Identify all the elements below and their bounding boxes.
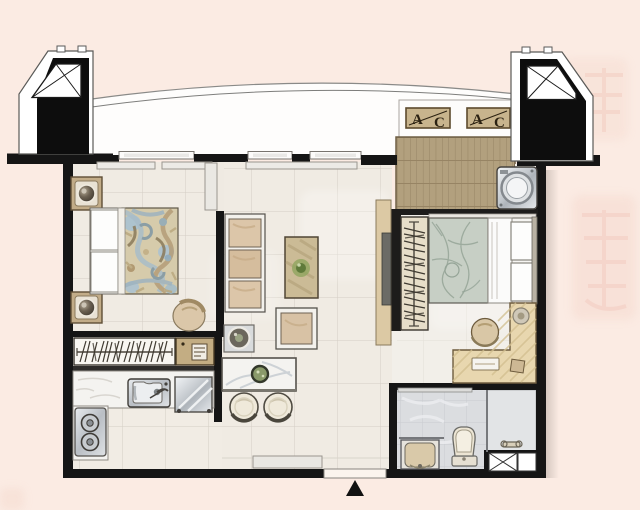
svg-text:C: C: [494, 115, 505, 131]
svg-text:C: C: [434, 115, 445, 131]
svg-text:A: A: [472, 112, 483, 128]
